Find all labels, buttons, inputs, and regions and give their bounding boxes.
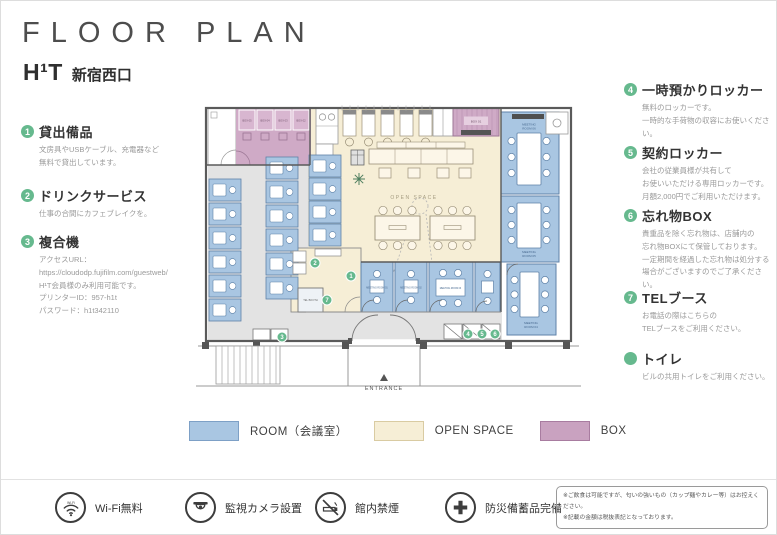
meeting-room-04: MEETING ROOM 04 <box>507 264 556 335</box>
box-area: BOX 05 BOX 04 BOX 03 BOX 02 <box>236 108 311 165</box>
first-aid-icon <box>445 492 476 523</box>
monitor <box>512 114 544 119</box>
plan-marker-7: 7 <box>322 295 332 305</box>
feature-contract-locker: 5 契約ロッカー 会社の従業員様が共有して お使いいただける専用ロッカーです。 … <box>624 143 774 203</box>
box-01-label: BOX 01 <box>471 120 482 124</box>
marker-badge-5: 5 <box>624 146 637 159</box>
open-space-label: OPEN SPACE <box>390 195 437 201</box>
box-03-label: BOX 03 <box>278 119 288 123</box>
door-jamb <box>416 338 420 344</box>
marker-badge-7: 7 <box>624 291 637 304</box>
feature-title: 一時預かりロッカー <box>642 80 764 99</box>
feature-body: 無料のロッカーです。 一時的な手荷物の収容にお使いください。 <box>642 102 774 140</box>
stairs <box>216 346 280 384</box>
feature-temp-locker: 4 一時預かりロッカー 無料のロッカーです。 一時的な手荷物の収容にお使いくださ… <box>624 80 774 140</box>
feature-toilet: トイレ ビルの共用トイレをご利用ください。 <box>624 349 774 384</box>
footnote-box: ※ご飲食は可能ですが、匂いの強いもの（カップ麺やカレー等）はお控えください。 ※… <box>556 486 768 529</box>
feature-body: お電話の際はこちらの TELブースをご利用ください。 <box>642 310 774 336</box>
box-02-label: BOX 02 <box>296 119 306 123</box>
meeting-room-03: MEETING ROOM 03 <box>429 262 473 312</box>
svg-text:MEETING ROOM 01: MEETING ROOM 01 <box>366 288 388 290</box>
feature-body: 会社の従業員様が共有して お使いいただける専用ロッカーです。 月額2,000円で… <box>642 165 774 203</box>
amenity-camera: 監視カメラ設置 <box>185 492 315 523</box>
legend-open-space: OPEN SPACE <box>374 421 514 441</box>
feature-title: 忘れ物BOX <box>642 206 712 225</box>
entrance-label: ENTRANCE <box>365 386 403 392</box>
svg-text:TEL BOOTH: TEL BOOTH <box>303 298 318 302</box>
focus-booth-row <box>475 262 500 312</box>
svg-text:ROOM 04: ROOM 04 <box>524 325 538 329</box>
entrance-arrow <box>380 374 388 381</box>
feature-tel-booth: 7 TELブース お電話の際はこちらの TELブースをご利用ください。 <box>624 288 774 336</box>
legend-box: BOX <box>540 421 627 441</box>
open-space-table-1 <box>375 206 420 249</box>
feature-body: アクセスURL： https://cloudodp.fujifilm.com/g… <box>39 254 201 318</box>
plan-marker-4: 4 <box>463 329 473 339</box>
closet <box>208 108 236 165</box>
box-04-label: BOX 04 <box>260 119 270 123</box>
plan-marker-1: 1 <box>346 271 356 281</box>
open-space-table-2 <box>430 206 475 249</box>
legend: ROOM（会議室） OPEN SPACE BOX <box>189 421 627 441</box>
box-05-label: BOX 05 <box>242 119 252 123</box>
coffee-machine <box>351 150 364 165</box>
meeting-room-02: MEETING ROOM 02 <box>395 262 427 312</box>
feature-drink: 2 ドリンクサービス 仕事の合間にカフェブレイクを。 <box>21 186 201 221</box>
tel-booth: TEL BOOTH <box>298 288 323 312</box>
toilet-bullet <box>624 352 637 365</box>
floor-plan-drawing: BOX 05 BOX 04 BOX 03 BOX 02 <box>196 93 621 399</box>
svg-text:MEETING ROOM 02: MEETING ROOM 02 <box>400 288 422 290</box>
feature-lost-box: 6 忘れ物BOX 貴重品を除く忘れ物は、店舗内の 忘れ物BOXにて保管しておりま… <box>624 206 774 292</box>
svg-text:MEETING ROOM 03: MEETING ROOM 03 <box>440 288 462 290</box>
meeting-room-05: MEETING ROOM 05 <box>501 196 559 262</box>
legend-open-space-swatch <box>374 421 424 441</box>
marker-badge-1: 1 <box>21 125 34 138</box>
box-01: BOX 01 <box>453 108 499 136</box>
marker-badge-2: 2 <box>21 189 34 202</box>
feature-title: ドリンクサービス <box>39 186 147 205</box>
plan-marker-2: 2 <box>310 258 320 268</box>
floor-plan-page: FLOOR PLAN H¹T 新宿西口 1 貸出備品 文房具やUSBケーブル、充… <box>0 0 777 535</box>
brand-name: H¹T <box>23 59 63 86</box>
feature-copier: 3 複合機 アクセスURL： https://cloudodp.fujifilm… <box>21 232 201 318</box>
feature-title: 契約ロッカー <box>642 143 723 162</box>
feature-body: ビルの共用トイレをご利用ください。 <box>642 371 774 384</box>
marker-badge-6: 6 <box>624 209 637 222</box>
svg-text:ROOM 06: ROOM 06 <box>522 127 536 131</box>
marker-badge-3: 3 <box>21 235 34 248</box>
feature-body: 文房具やUSBケーブル、充電器など 無料で貸出しています。 <box>39 144 201 170</box>
plan-marker-6: 6 <box>490 329 500 339</box>
no-smoking-icon <box>315 492 346 523</box>
amenity-wifi: Wi-Fi Wi-Fi無料 <box>55 492 185 523</box>
amenity-footer: Wi-Fi Wi-Fi無料 監視カメラ設置 館内禁煙 防災備 <box>1 479 776 535</box>
marker-badge-4: 4 <box>624 83 637 96</box>
camera-icon <box>185 492 216 523</box>
storage-cells <box>433 108 453 136</box>
feature-title: 複合機 <box>39 232 80 251</box>
svg-text:Wi-Fi: Wi-Fi <box>67 500 75 504</box>
legend-room: ROOM（会議室） <box>189 421 348 441</box>
plan-marker-3: 3 <box>277 332 287 342</box>
legend-box-swatch <box>540 421 590 441</box>
plan-marker-5: 5 <box>477 329 487 339</box>
wifi-icon: Wi-Fi <box>55 492 86 523</box>
page-title: FLOOR PLAN <box>22 17 316 50</box>
amenity-no-smoking: 館内禁煙 <box>315 492 445 523</box>
feature-title: 貸出備品 <box>39 122 93 141</box>
feature-title: トイレ <box>642 349 683 368</box>
meeting-room-01: MEETING ROOM 01 <box>361 262 393 312</box>
feature-title: TELブース <box>642 288 708 307</box>
floor-plan-svg: BOX 05 BOX 04 BOX 03 BOX 02 <box>196 93 621 399</box>
location-name: 新宿西口 <box>72 64 132 85</box>
legend-room-swatch <box>189 421 239 441</box>
svg-text:ROOM 05: ROOM 05 <box>522 254 536 258</box>
feature-body: 仕事の合間にカフェブレイクを。 <box>39 208 201 221</box>
corner-cell <box>546 112 568 134</box>
feature-body: 貴重品を除く忘れ物は、店舗内の 忘れ物BOXにて保管しております。 一定期間を経… <box>642 228 774 292</box>
brand-logo: H¹T 新宿西口 <box>23 59 132 86</box>
feature-lending: 1 貸出備品 文房具やUSBケーブル、充電器など 無料で貸出しています。 <box>21 122 201 170</box>
